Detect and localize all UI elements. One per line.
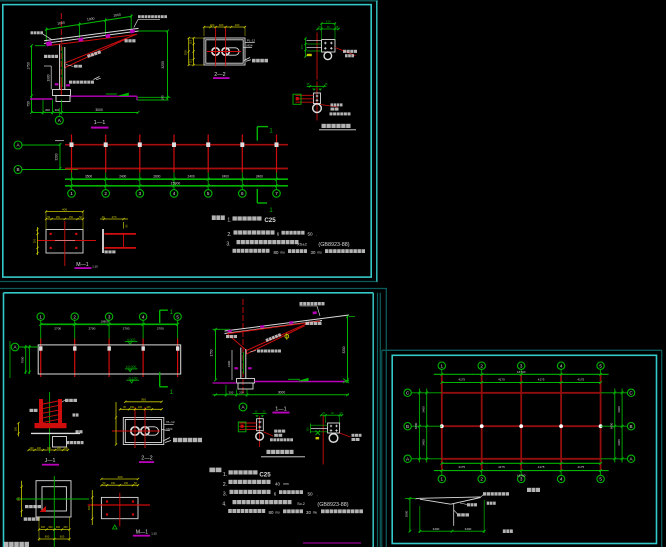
- svg-text:4: 4: [560, 477, 563, 482]
- svg-text:150: 150: [326, 19, 331, 23]
- svg-text:30: 30: [306, 510, 311, 515]
- svg-text:C25: C25: [264, 217, 276, 224]
- svg-text:105: 105: [146, 406, 151, 409]
- svg-text:30: 30: [311, 250, 316, 255]
- svg-text:2400: 2400: [188, 175, 195, 179]
- svg-text:5: 5: [176, 314, 179, 319]
- svg-text:1750: 1750: [209, 349, 213, 356]
- svg-text:1: 1: [441, 477, 444, 482]
- svg-text:50: 50: [307, 232, 313, 237]
- svg-text:115: 115: [189, 58, 193, 63]
- svg-text:4175: 4175: [578, 465, 585, 469]
- svg-text:1: 1: [269, 128, 273, 135]
- svg-text:1: 1: [269, 207, 273, 214]
- svg-text:mu: mu: [313, 510, 318, 514]
- svg-text:1—1: 1—1: [94, 120, 106, 126]
- svg-text:200: 200: [239, 390, 244, 394]
- svg-text:(GB8923-88): (GB8923-88): [317, 502, 348, 508]
- svg-text:150: 150: [69, 216, 74, 219]
- svg-text:40: 40: [275, 482, 280, 487]
- svg-text:7000: 7000: [20, 356, 24, 363]
- svg-text:3500: 3500: [85, 175, 92, 179]
- svg-text:1.: 1.: [223, 472, 227, 478]
- svg-text:2.: 2.: [223, 482, 227, 488]
- svg-text:15900: 15900: [171, 181, 181, 185]
- svg-text:3200: 3200: [55, 153, 59, 160]
- svg-text:3: 3: [520, 477, 523, 482]
- svg-text:2.: 2.: [227, 232, 231, 238]
- svg-text:150: 150: [305, 427, 309, 432]
- svg-text:J—1: J—1: [45, 458, 56, 464]
- svg-text:3: 3: [139, 191, 142, 196]
- svg-text:300: 300: [48, 526, 53, 529]
- svg-text:3400: 3400: [433, 527, 440, 531]
- svg-text:4175: 4175: [458, 465, 465, 469]
- svg-text:600: 600: [45, 535, 50, 539]
- svg-text:1750: 1750: [26, 62, 30, 70]
- svg-text:3: 3: [520, 363, 523, 368]
- svg-text:2700: 2700: [123, 327, 130, 331]
- svg-text:4175: 4175: [498, 465, 505, 469]
- svg-text:4.: 4.: [222, 501, 226, 507]
- svg-text:1.: 1.: [227, 218, 231, 224]
- svg-text:270: 270: [112, 215, 117, 219]
- svg-text:3000: 3000: [278, 391, 286, 395]
- svg-text:300: 300: [41, 526, 46, 529]
- svg-text:B: B: [16, 167, 19, 172]
- svg-text:600: 600: [60, 535, 65, 539]
- svg-text:1:10: 1:10: [151, 532, 157, 536]
- svg-text:mu: mu: [280, 250, 285, 254]
- svg-text:So.2: So.2: [297, 502, 305, 506]
- svg-text:150: 150: [111, 482, 116, 485]
- svg-text:.: .: [316, 491, 317, 496]
- svg-text:.: .: [316, 232, 317, 237]
- svg-text:360: 360: [141, 398, 146, 402]
- svg-text:100: 100: [210, 23, 215, 27]
- svg-text:1: 1: [39, 314, 42, 319]
- svg-text:750: 750: [26, 101, 30, 107]
- svg-text:3400: 3400: [421, 406, 425, 413]
- svg-text:2: 2: [480, 477, 483, 482]
- svg-text:350: 350: [183, 50, 187, 55]
- svg-text:150: 150: [15, 426, 18, 431]
- svg-text:M24: M24: [166, 427, 172, 431]
- svg-text:80: 80: [274, 250, 279, 255]
- svg-text:3000: 3000: [95, 108, 103, 112]
- svg-text:XS±2: XS±2: [297, 241, 308, 246]
- svg-text:M—1: M—1: [136, 530, 149, 536]
- svg-text:7: 7: [275, 191, 278, 196]
- svg-text:200: 200: [37, 447, 42, 450]
- svg-text:mu: mu: [317, 250, 322, 254]
- svg-text:80: 80: [269, 510, 274, 515]
- svg-text:2700: 2700: [54, 327, 61, 331]
- svg-text:150: 150: [124, 482, 129, 485]
- svg-text:10800: 10800: [100, 319, 108, 323]
- svg-text:3.: 3.: [223, 492, 227, 498]
- svg-text:300: 300: [17, 496, 20, 501]
- svg-text:1900: 1900: [227, 360, 231, 367]
- svg-text:B: B: [406, 424, 409, 429]
- svg-text:4175: 4175: [538, 465, 545, 469]
- svg-text:1—1: 1—1: [275, 406, 286, 412]
- svg-text:4175: 4175: [458, 377, 465, 381]
- svg-text:1:10: 1:10: [92, 265, 98, 269]
- svg-text:2: 2: [480, 363, 483, 368]
- svg-text:300: 300: [56, 526, 61, 529]
- svg-text:3400: 3400: [421, 439, 425, 446]
- svg-text:16700: 16700: [517, 473, 526, 477]
- svg-text:4: 4: [560, 363, 563, 368]
- svg-text:(GB8923-88): (GB8923-88): [318, 242, 349, 248]
- svg-text:2: 2: [104, 191, 107, 196]
- svg-text:6800: 6800: [609, 422, 613, 429]
- svg-text:105: 105: [138, 406, 143, 409]
- svg-text:50: 50: [307, 491, 313, 496]
- svg-text:2: 2: [73, 314, 76, 319]
- svg-text:300: 300: [63, 526, 68, 529]
- svg-text:5: 5: [599, 363, 602, 368]
- svg-text:PL-12: PL-12: [166, 420, 175, 424]
- svg-text:3400: 3400: [465, 527, 472, 531]
- svg-text:3.: 3.: [226, 242, 230, 248]
- svg-text:4175: 4175: [538, 377, 545, 381]
- svg-text:200: 200: [33, 238, 36, 243]
- svg-text:M—1: M—1: [76, 262, 89, 268]
- svg-text:M24: M24: [246, 44, 252, 48]
- svg-text:150: 150: [130, 406, 135, 409]
- svg-text:mu: mu: [275, 510, 280, 514]
- svg-text:3200: 3200: [161, 61, 165, 69]
- svg-text:PL-12: PL-12: [247, 38, 256, 42]
- svg-text:2000: 2000: [405, 510, 409, 517]
- svg-text:2400: 2400: [119, 175, 126, 179]
- svg-text:16700: 16700: [517, 370, 526, 374]
- svg-text:115: 115: [189, 39, 193, 44]
- svg-text:6800: 6800: [414, 422, 418, 429]
- svg-text:2—2: 2—2: [141, 455, 152, 461]
- svg-text:1: 1: [70, 191, 73, 196]
- svg-text:3400: 3400: [617, 439, 621, 446]
- svg-text:100: 100: [64, 447, 69, 450]
- svg-text:4175: 4175: [578, 377, 585, 381]
- svg-text:150: 150: [300, 44, 304, 49]
- svg-text:5: 5: [599, 477, 602, 482]
- svg-text:400: 400: [117, 475, 122, 479]
- svg-text:2700: 2700: [157, 327, 164, 331]
- svg-text:1: 1: [170, 389, 174, 396]
- svg-text:200: 200: [229, 390, 234, 394]
- svg-text:100: 100: [219, 23, 224, 27]
- svg-text:mm: mm: [283, 482, 289, 486]
- svg-text:400: 400: [62, 207, 67, 211]
- svg-text:150: 150: [56, 216, 61, 219]
- svg-text:100: 100: [30, 447, 35, 450]
- svg-text:150: 150: [161, 95, 165, 100]
- svg-text:3200: 3200: [342, 346, 346, 353]
- svg-text:200: 200: [45, 108, 50, 112]
- svg-text:2400: 2400: [256, 175, 263, 179]
- svg-text:C25: C25: [259, 471, 271, 478]
- svg-text:2—2: 2—2: [214, 72, 225, 78]
- svg-text:1900: 1900: [46, 74, 50, 81]
- svg-text:5: 5: [207, 191, 210, 196]
- svg-text:100: 100: [235, 23, 240, 27]
- svg-text:4: 4: [173, 191, 176, 196]
- svg-text:2800: 2800: [153, 175, 160, 179]
- svg-text:2700: 2700: [88, 327, 95, 331]
- svg-text:B: B: [630, 424, 633, 429]
- svg-text:2400: 2400: [222, 175, 229, 179]
- svg-text:300: 300: [47, 447, 52, 450]
- svg-text:200: 200: [57, 447, 62, 450]
- svg-text:4175: 4175: [498, 377, 505, 381]
- svg-text:4: 4: [142, 314, 145, 319]
- svg-text:200: 200: [88, 505, 91, 510]
- svg-text:1: 1: [441, 363, 444, 368]
- svg-text:1: 1: [170, 309, 174, 316]
- svg-text:6: 6: [241, 191, 244, 196]
- svg-text:3400: 3400: [617, 406, 621, 413]
